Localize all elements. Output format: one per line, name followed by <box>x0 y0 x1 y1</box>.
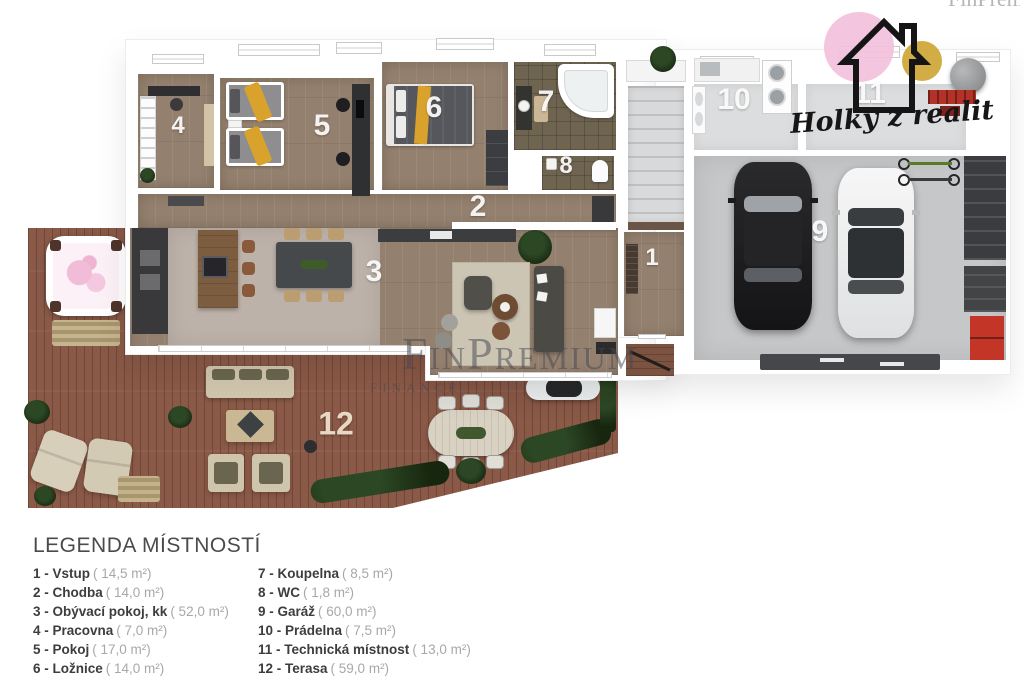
sofa-pillow <box>536 291 547 302</box>
legend-item: 1 - Vstup( 14,5 m²) <box>33 566 152 581</box>
kitchen-tall-unit <box>132 228 168 334</box>
desk-monitor <box>356 100 364 118</box>
legend-item-area: ( 60,0 m²) <box>318 604 377 619</box>
counter-sink <box>430 231 452 239</box>
legend-item-area: ( 59,0 m²) <box>331 661 390 676</box>
toilet <box>592 160 608 182</box>
bush <box>24 400 50 424</box>
legend-item: 5 - Pokoj( 17,0 m²) <box>33 642 151 657</box>
legend-item: 12 - Terasa( 59,0 m²) <box>258 661 389 676</box>
water-heater <box>950 58 986 94</box>
dining-chair <box>284 228 300 240</box>
legend-item-area: ( 14,5 m²) <box>93 566 152 581</box>
room-label-4: 4 <box>171 112 184 140</box>
legend-item: 11 - Technická místnost( 13,0 m²) <box>258 642 471 657</box>
garage-shelf-low <box>964 266 1006 312</box>
window <box>238 44 320 56</box>
hot-tub-headrest <box>111 240 122 251</box>
bar-stool <box>242 262 255 275</box>
bar-stool <box>242 284 255 297</box>
dining-chair <box>306 228 322 240</box>
car-white-rear-glass <box>848 280 904 294</box>
car-black-roof <box>744 214 802 266</box>
sofa-pillow <box>536 273 547 283</box>
car-white-windshield <box>848 208 904 226</box>
outdoor-side-table <box>118 476 160 502</box>
legend-item: 8 - WC( 1,8 m²) <box>258 585 354 600</box>
coffee-table-top <box>500 302 510 312</box>
pillow <box>396 116 406 138</box>
legend-item-label: 10 - Prádelna <box>258 623 342 638</box>
stair-mat <box>628 222 684 230</box>
legend-title: LEGENDA MÍSTNOSTÍ <box>33 534 261 558</box>
legend-item-label: 11 - Technická místnost <box>258 642 409 657</box>
dining-chair <box>438 396 456 410</box>
legend-item: 7 - Koupelna( 8,5 m²) <box>258 566 393 581</box>
wc-sink <box>546 158 557 170</box>
room-label-12: 12 <box>318 406 354 443</box>
outdoor-sofa-cushion <box>212 369 235 380</box>
dining-chair <box>284 290 300 302</box>
table-wreath <box>456 427 486 439</box>
hall-console <box>168 196 204 206</box>
window <box>152 54 204 64</box>
dining-chair <box>486 455 504 469</box>
outdoor-sofa-cushion <box>239 369 262 380</box>
watermark-subtitle-row: FINANCE <box>370 380 620 396</box>
bush <box>34 486 56 506</box>
room-label-3: 3 <box>366 255 383 289</box>
oven <box>140 250 160 266</box>
garage-shelving <box>964 156 1006 260</box>
bush <box>456 458 486 484</box>
counter-appliance <box>700 62 720 76</box>
corner-watermark-fragment: FinPremium <box>948 0 1020 13</box>
office-plant <box>140 168 155 183</box>
room-label-7: 7 <box>538 85 555 119</box>
legend-item-label: 2 - Chodba <box>33 585 103 600</box>
dining-chair <box>486 396 504 410</box>
garage-door-handle <box>820 358 844 362</box>
legend-item-area: ( 7,0 m²) <box>116 623 167 638</box>
legend-item: 2 - Chodba( 14,0 m²) <box>33 585 164 600</box>
car-white-roof-glass <box>848 228 904 278</box>
bedroom-wardrobe <box>486 130 508 186</box>
car-mirror <box>728 198 736 203</box>
hot-tub-water <box>53 243 119 309</box>
car-black-windshield <box>744 196 802 212</box>
hot-tub-headrest <box>50 240 61 251</box>
legend-item-area: ( 13,0 m²) <box>412 642 471 657</box>
window <box>544 44 596 56</box>
staircase <box>628 86 684 224</box>
floor-plan-page: 1 2 3 4 5 6 7 8 9 10 11 12 FinPremium FI… <box>0 0 1024 681</box>
dining-chair <box>328 290 344 302</box>
legend-item-label: 4 - Pracovna <box>33 623 113 638</box>
room-label-10: 10 <box>717 83 750 117</box>
corner-watermark-text: FinPremium <box>948 0 1020 12</box>
desk-chair <box>336 98 350 112</box>
legend-item-label: 12 - Terasa <box>258 661 328 676</box>
legend-item-area: ( 8,5 m²) <box>342 566 393 581</box>
office-wardrobe <box>204 104 214 166</box>
bike-frame <box>908 162 952 165</box>
pillow <box>396 90 406 112</box>
dining-chair <box>306 290 322 302</box>
outdoor-stool <box>304 440 317 453</box>
legend: LEGENDA MÍSTNOSTÍ 1 - Vstup( 14,5 m²) 2 … <box>30 534 590 679</box>
bicycle <box>898 174 962 186</box>
legend-item-label: 5 - Pokoj <box>33 642 89 657</box>
room-label-2: 2 <box>470 190 487 224</box>
sink-basin <box>695 112 703 126</box>
bush <box>168 406 192 428</box>
yard-tree <box>650 46 676 72</box>
bar-stool <box>242 240 255 253</box>
legend-item-label: 3 - Obývací pokoj, kk <box>33 604 167 619</box>
armchair-cushion <box>214 462 238 484</box>
legend-item-area: ( 14,0 m²) <box>106 585 165 600</box>
car-black-rear-glass <box>744 268 802 282</box>
legend-item-label: 7 - Koupelna <box>258 566 339 581</box>
hot-tub-mat <box>52 320 120 346</box>
room-label-5: 5 <box>314 109 331 143</box>
office-chair <box>170 98 183 111</box>
wash-basin <box>518 100 530 112</box>
legend-item-area: ( 52,0 m²) <box>170 604 229 619</box>
island-hob <box>202 256 228 278</box>
window <box>436 38 494 50</box>
hot-tub-headrest <box>111 301 122 312</box>
car-mirror <box>832 210 840 215</box>
washer-door <box>768 64 786 82</box>
legend-item: 3 - Obývací pokoj, kk( 52,0 m²) <box>33 604 229 619</box>
living-plant <box>518 230 552 264</box>
room-label-1: 1 <box>645 244 658 272</box>
entry-bench <box>626 244 638 294</box>
window <box>336 42 382 54</box>
pillow <box>230 135 240 159</box>
legend-item: 4 - Pracovna( 7,0 m²) <box>33 623 167 638</box>
oven <box>140 274 160 290</box>
legend-item: 10 - Prádelna( 7,5 m²) <box>258 623 396 638</box>
garage-door <box>760 354 940 370</box>
outdoor-sofa-cushion <box>266 369 289 380</box>
red-tool-cabinet <box>970 316 1004 360</box>
legend-item-label: 1 - Vstup <box>33 566 90 581</box>
room-label-9: 9 <box>812 215 829 249</box>
washer-door <box>768 88 786 106</box>
legend-item-label: 8 - WC <box>258 585 300 600</box>
bike-frame <box>908 178 952 181</box>
finpremium-watermark: FinPremium FINANCE <box>370 332 670 398</box>
office-desk <box>148 86 200 96</box>
room-label-6: 6 <box>426 91 443 125</box>
room-label-8: 8 <box>559 152 572 180</box>
bed-single <box>226 82 284 120</box>
legend-item-area: ( 14,0 m²) <box>106 661 165 676</box>
bicycle <box>898 158 962 170</box>
legend-item: 6 - Ložnice( 14,0 m²) <box>33 661 164 676</box>
legend-item-area: ( 7,5 m²) <box>345 623 396 638</box>
dining-chair <box>328 228 344 240</box>
legend-item-label: 9 - Garáž <box>258 604 315 619</box>
nightstand <box>228 120 242 128</box>
legend-item-area: ( 17,0 m²) <box>92 642 151 657</box>
pillow <box>230 89 240 113</box>
desk-chair <box>336 152 350 166</box>
armchair-cushion <box>259 462 283 484</box>
armchair <box>464 276 492 310</box>
car-mirror <box>810 198 818 203</box>
garage-door-handle <box>880 362 904 366</box>
car-mirror <box>912 210 920 215</box>
sink-basin <box>695 92 703 106</box>
legend-item: 9 - Garáž( 60,0 m²) <box>258 604 377 619</box>
watermark-subtitle: FINANCE <box>370 380 461 396</box>
watermark-name: FinPremium <box>370 332 670 376</box>
dining-garland <box>300 260 328 269</box>
legend-item-area: ( 1,8 m²) <box>303 585 354 600</box>
hot-tub-headrest <box>50 301 61 312</box>
legend-item-label: 6 - Ložnice <box>33 661 103 676</box>
bed-single <box>226 128 284 166</box>
